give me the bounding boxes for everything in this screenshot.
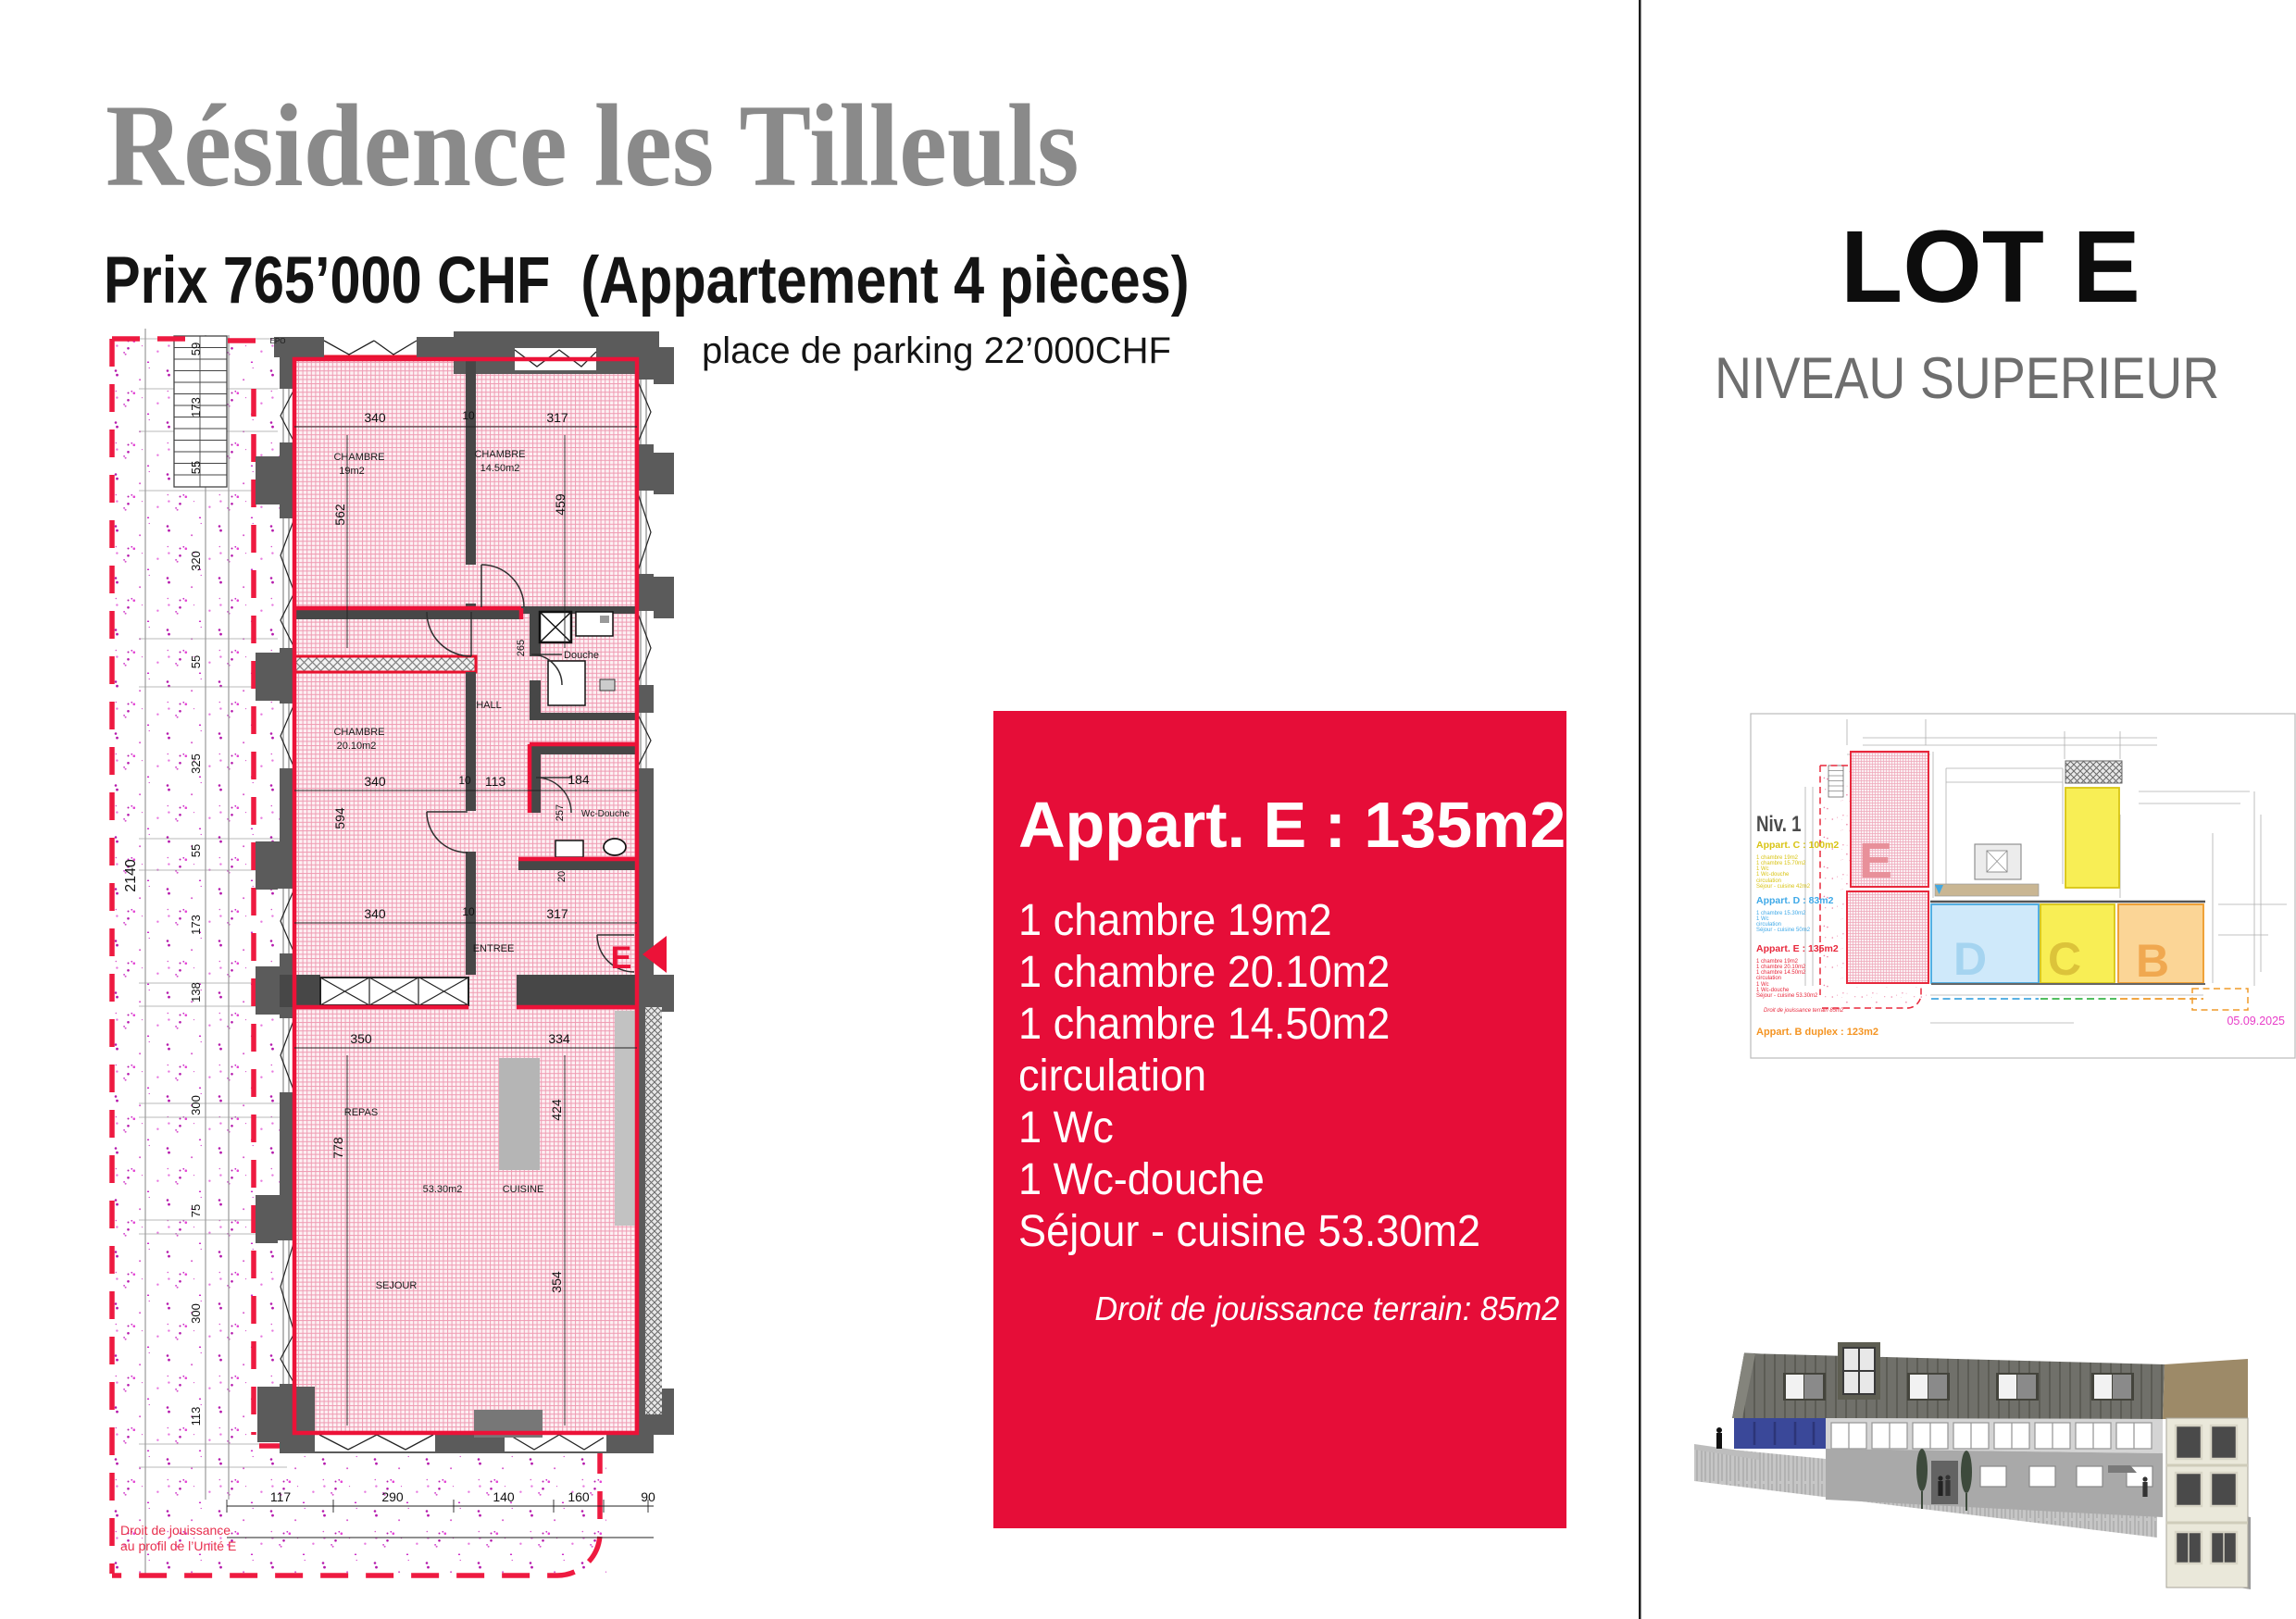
svg-text:184: 184 [568,772,590,787]
svg-text:340: 340 [364,906,386,921]
svg-text:320: 320 [189,551,203,571]
svg-text:317: 317 [546,906,568,921]
svg-text:E: E [611,940,632,976]
svg-text:265: 265 [516,640,527,656]
svg-text:Appart. C : 100m2: Appart. C : 100m2 [1756,840,1839,851]
svg-text:300: 300 [189,1303,203,1324]
svg-text:117: 117 [270,1489,292,1504]
svg-text:459: 459 [553,493,568,516]
svg-text:ENTREE: ENTREE [473,943,515,954]
svg-text:CHAMBRE: CHAMBRE [333,727,384,738]
svg-text:CHAMBRE: CHAMBRE [333,452,384,463]
svg-text:75: 75 [189,1204,203,1217]
svg-text:55: 55 [189,655,203,668]
svg-text:CUISINE: CUISINE [503,1184,544,1195]
svg-text:Séjour - cuisine 42m2: Séjour - cuisine 42m2 [1756,884,1811,890]
svg-text:90: 90 [641,1489,655,1504]
svg-text:HALL: HALL [476,700,502,711]
svg-text:340: 340 [364,774,386,789]
svg-text:C: C [2048,933,2081,985]
svg-text:59: 59 [189,342,203,355]
svg-text:300: 300 [189,1095,203,1115]
svg-text:Séjour - cuisine 53.30m2: Séjour - cuisine 53.30m2 [1756,993,1818,999]
svg-text:113: 113 [189,1407,203,1426]
svg-text:257: 257 [555,804,566,821]
svg-text:55: 55 [189,461,203,474]
svg-text:350: 350 [350,1031,372,1046]
svg-text:Droit de jouissance: Droit de jouissance [120,1523,231,1538]
svg-text:19m2: 19m2 [339,466,365,477]
svg-text:20: 20 [556,871,568,882]
svg-text:10: 10 [462,905,475,918]
svg-text:594: 594 [332,807,347,829]
svg-text:Appart. D : 83m2: Appart. D : 83m2 [1756,895,1834,906]
svg-text:20.10m2: 20.10m2 [337,741,377,752]
svg-text:424: 424 [549,1099,564,1121]
svg-text:173: 173 [189,397,203,417]
svg-text:173: 173 [189,915,203,935]
svg-text:113: 113 [485,774,506,789]
svg-text:290: 290 [381,1489,404,1504]
svg-text:1 Wc-douche: 1 Wc-douche [1756,872,1790,878]
svg-text:circulation: circulation [1756,976,1781,981]
svg-text:334: 334 [548,1031,570,1046]
svg-text:138: 138 [189,982,203,1003]
svg-text:au profil de l’Unité E: au profil de l’Unité E [120,1538,236,1553]
svg-text:140: 140 [493,1489,515,1504]
svg-text:Séjour - cuisine 50m2: Séjour - cuisine 50m2 [1756,928,1811,933]
svg-text:CHAMBRE: CHAMBRE [474,449,525,460]
svg-text:D: D [1953,933,1987,985]
svg-text:2140: 2140 [123,859,139,892]
svg-text:Douche: Douche [564,650,599,661]
svg-text:317: 317 [546,410,568,425]
svg-text:778: 778 [331,1137,345,1159]
svg-text:B: B [2136,935,2169,987]
svg-text:160: 160 [568,1489,590,1504]
svg-text:EPO: EPO [270,337,286,345]
svg-text:REPAS: REPAS [344,1107,378,1118]
svg-text:E: E [1859,833,1892,889]
svg-text:10: 10 [458,774,471,787]
svg-text:325: 325 [189,753,203,774]
svg-text:05.09.2025: 05.09.2025 [2227,1015,2285,1027]
svg-text:10: 10 [462,409,475,422]
svg-text:14.50m2: 14.50m2 [480,463,520,474]
svg-text:Niv. 1: Niv. 1 [1756,812,1802,837]
svg-text:SEJOUR: SEJOUR [376,1280,418,1291]
svg-text:Droit de jouissance terrain 85: Droit de jouissance terrain 85m2 [1764,1008,1844,1014]
svg-text:53.30m2: 53.30m2 [423,1184,463,1195]
svg-text:340: 340 [364,410,386,425]
svg-text:562: 562 [332,504,347,526]
svg-text:Appart. B duplex : 123m2: Appart. B duplex : 123m2 [1756,1027,1878,1038]
svg-text:Appart. E : 135m2: Appart. E : 135m2 [1756,943,1839,954]
svg-text:Wc-Douche: Wc-Douche [581,809,630,819]
svg-text:55: 55 [189,844,203,857]
svg-text:354: 354 [549,1271,564,1293]
